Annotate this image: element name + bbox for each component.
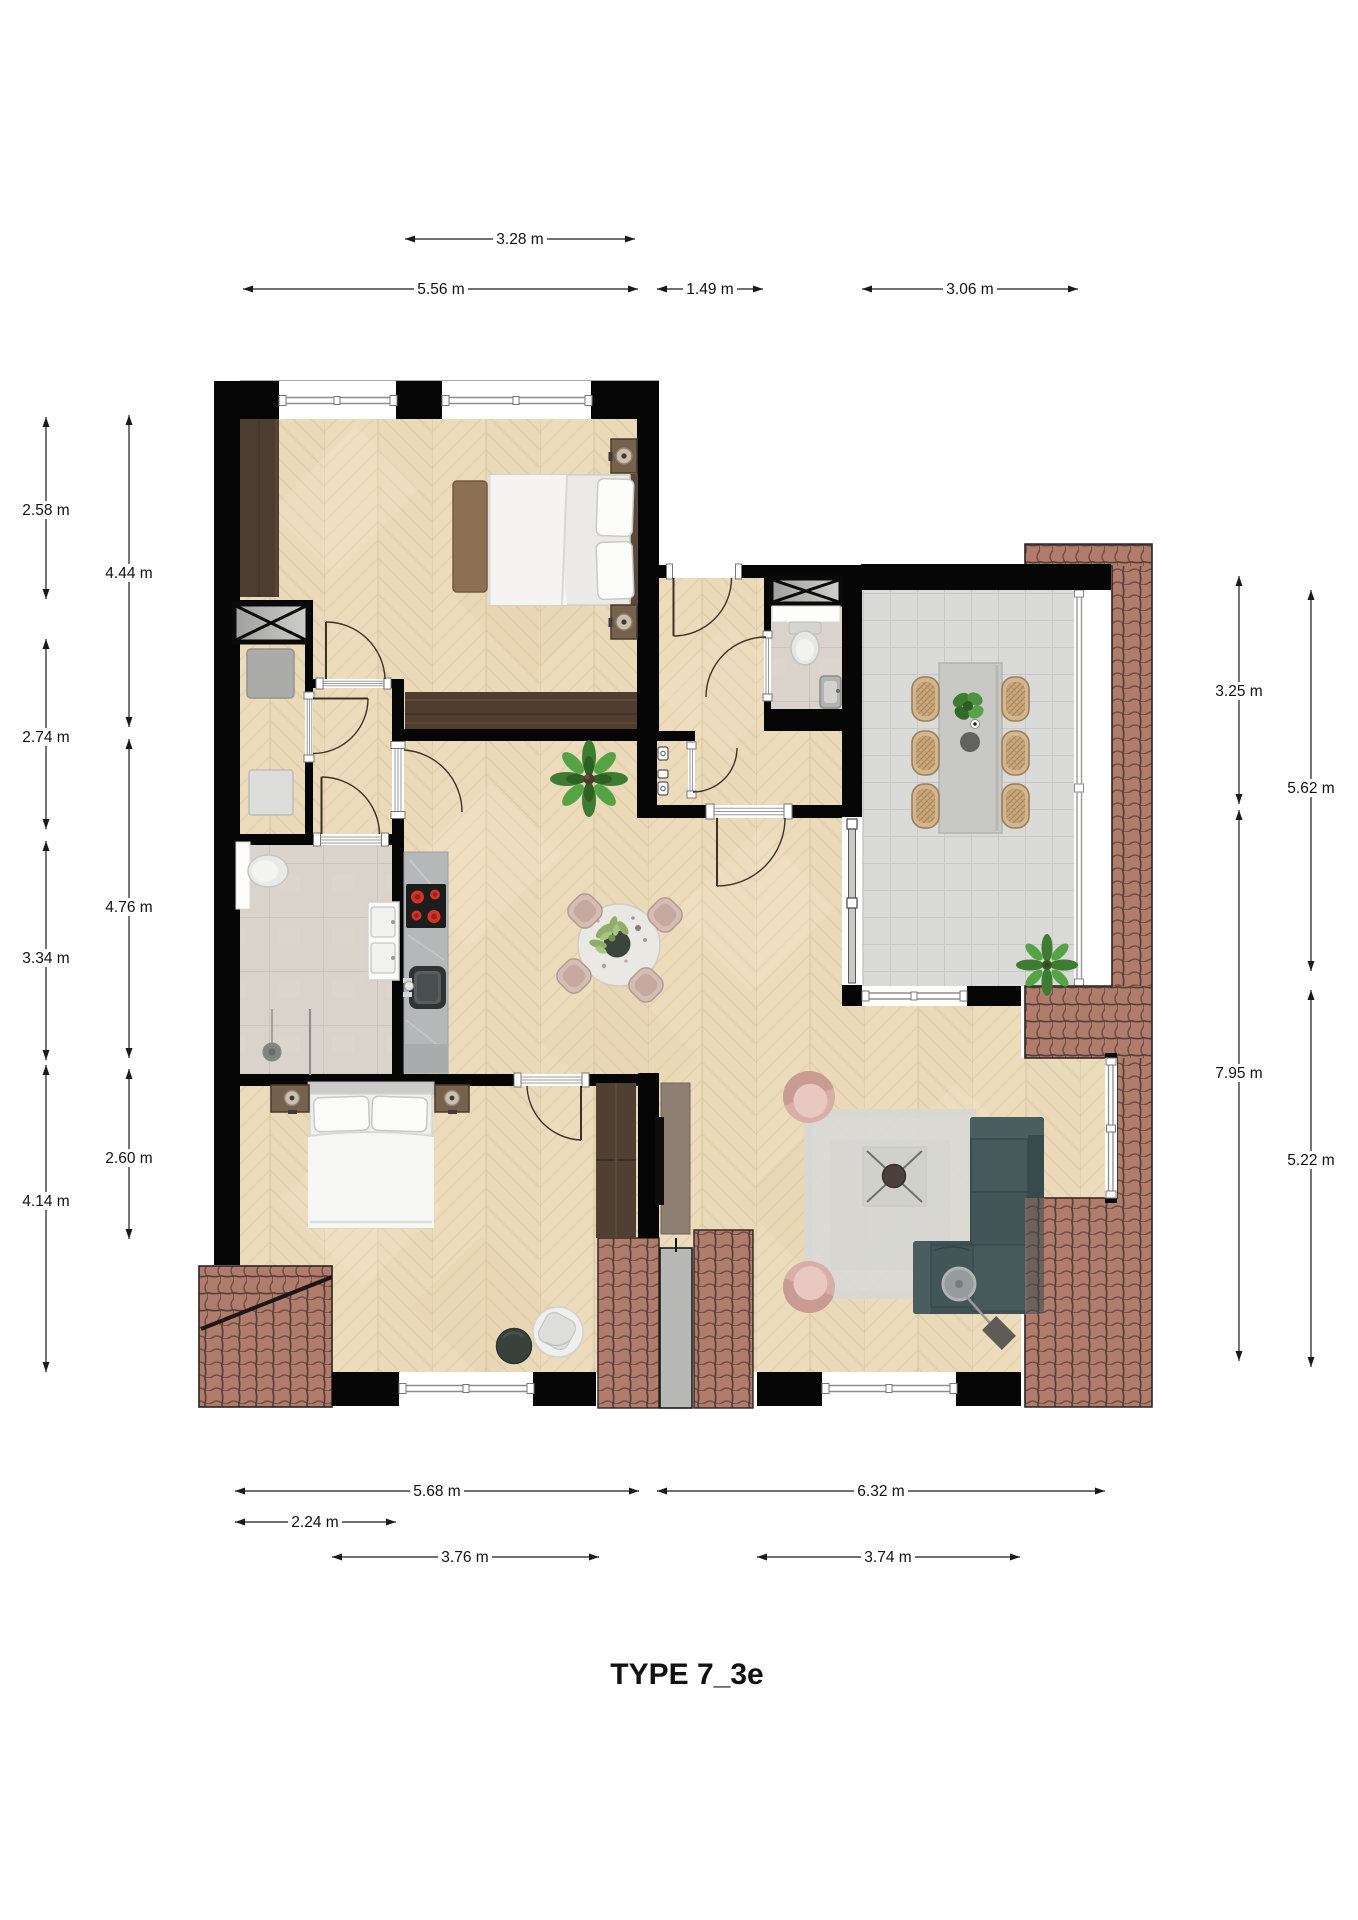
svg-text:3.06 m: 3.06 m xyxy=(946,281,993,298)
svg-text:2.60 m: 2.60 m xyxy=(105,1150,152,1167)
svg-text:5.56 m: 5.56 m xyxy=(417,281,464,298)
svg-text:TYPE 7_3e: TYPE 7_3e xyxy=(610,1658,763,1691)
svg-text:2.74 m: 2.74 m xyxy=(22,729,69,746)
svg-text:1.49 m: 1.49 m xyxy=(686,281,733,298)
svg-text:3.34 m: 3.34 m xyxy=(22,950,69,967)
svg-text:3.74 m: 3.74 m xyxy=(864,1549,911,1566)
svg-text:3.76 m: 3.76 m xyxy=(441,1549,488,1566)
svg-text:2.24 m: 2.24 m xyxy=(291,1514,338,1531)
svg-text:4.76 m: 4.76 m xyxy=(105,899,152,916)
svg-text:4.44 m: 4.44 m xyxy=(105,565,152,582)
svg-text:2.58 m: 2.58 m xyxy=(22,502,69,519)
svg-text:5.22 m: 5.22 m xyxy=(1287,1152,1334,1169)
svg-text:5.62 m: 5.62 m xyxy=(1287,780,1334,797)
svg-text:4.14 m: 4.14 m xyxy=(22,1193,69,1210)
svg-text:3.25 m: 3.25 m xyxy=(1215,683,1262,700)
svg-text:5.68 m: 5.68 m xyxy=(413,1483,460,1500)
svg-text:7.95 m: 7.95 m xyxy=(1215,1065,1262,1082)
svg-text:3.28 m: 3.28 m xyxy=(496,231,543,248)
svg-text:6.32 m: 6.32 m xyxy=(857,1483,904,1500)
